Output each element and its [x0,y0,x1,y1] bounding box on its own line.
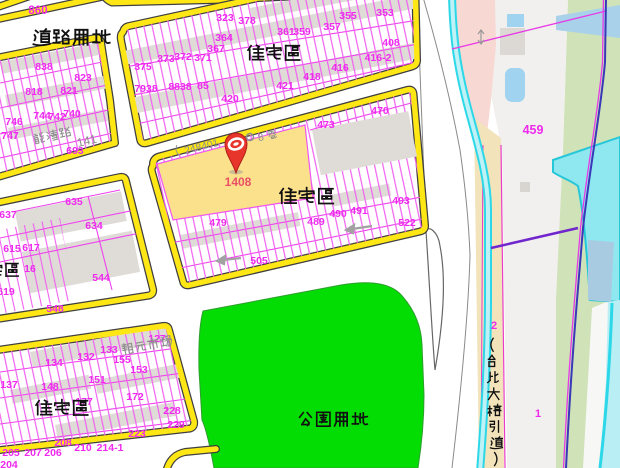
svg-text:818: 818 [25,86,43,98]
svg-text:421: 421 [276,80,294,92]
svg-text:359: 359 [293,26,311,38]
svg-text:747: 747 [1,130,19,142]
svg-text:134: 134 [45,357,63,369]
svg-text:479: 479 [209,217,227,229]
svg-text:137: 137 [0,379,18,391]
svg-text:522: 522 [398,217,416,229]
svg-text:544: 544 [92,272,110,284]
svg-text:416: 416 [331,62,349,74]
svg-text:823: 823 [74,72,92,84]
svg-text:228: 228 [163,405,181,417]
svg-text:821: 821 [60,85,78,97]
svg-text:416-2: 416-2 [365,52,392,64]
svg-text:153: 153 [130,364,148,376]
svg-text:418: 418 [303,71,321,83]
svg-text:355: 355 [339,10,357,22]
svg-text:207: 207 [24,447,42,459]
svg-text:148: 148 [41,381,59,393]
svg-text:619: 619 [0,286,15,298]
svg-text:746: 746 [5,116,23,128]
svg-text:489: 489 [307,216,325,228]
svg-text:459: 459 [523,123,544,137]
svg-text:323: 323 [216,12,234,24]
svg-text:615: 615 [3,243,21,255]
svg-text:16: 16 [24,263,36,275]
svg-text:205: 205 [2,447,20,459]
svg-text:838: 838 [35,61,53,73]
svg-text:151: 151 [88,374,106,386]
svg-text:223: 223 [128,428,146,440]
svg-text:7938: 7938 [134,83,158,95]
svg-text:364: 364 [215,32,233,44]
svg-text:860: 860 [28,5,47,17]
svg-text:634: 634 [85,220,103,232]
svg-text:740: 740 [63,108,81,120]
svg-text:172: 172 [126,391,144,403]
svg-text:491: 491 [350,205,368,217]
svg-text:1408: 1408 [225,175,252,189]
svg-text:353: 353 [376,7,394,19]
svg-text:8838: 8838 [168,81,192,93]
svg-text:635: 635 [65,196,83,208]
svg-text:204: 204 [0,459,18,468]
svg-text:617: 617 [22,242,40,254]
svg-text:742: 742 [48,111,66,123]
svg-text:548: 548 [46,303,64,315]
svg-text:2: 2 [491,320,497,332]
svg-text:493: 493 [392,195,410,207]
svg-text:490: 490 [329,208,347,220]
svg-text:473: 473 [317,119,335,131]
svg-text:357: 357 [323,21,341,33]
svg-text:372: 372 [174,51,192,63]
svg-text:206: 206 [44,447,62,459]
svg-text:470: 470 [371,105,389,117]
svg-text:214-1: 214-1 [97,442,124,454]
svg-text:637: 637 [0,209,17,221]
svg-text:373: 373 [157,53,175,65]
svg-text:132: 132 [77,351,95,363]
svg-text:367: 367 [207,43,225,55]
svg-text:505: 505 [250,255,268,267]
svg-text:1: 1 [535,408,541,420]
svg-text:375: 375 [134,61,152,73]
svg-text:229: 229 [167,419,185,431]
svg-text:155: 155 [113,354,131,366]
svg-text:85: 85 [197,80,209,92]
svg-text:408: 408 [382,37,400,49]
svg-text:378: 378 [238,15,256,27]
svg-text:420: 420 [221,93,239,105]
svg-text:210: 210 [74,442,92,454]
